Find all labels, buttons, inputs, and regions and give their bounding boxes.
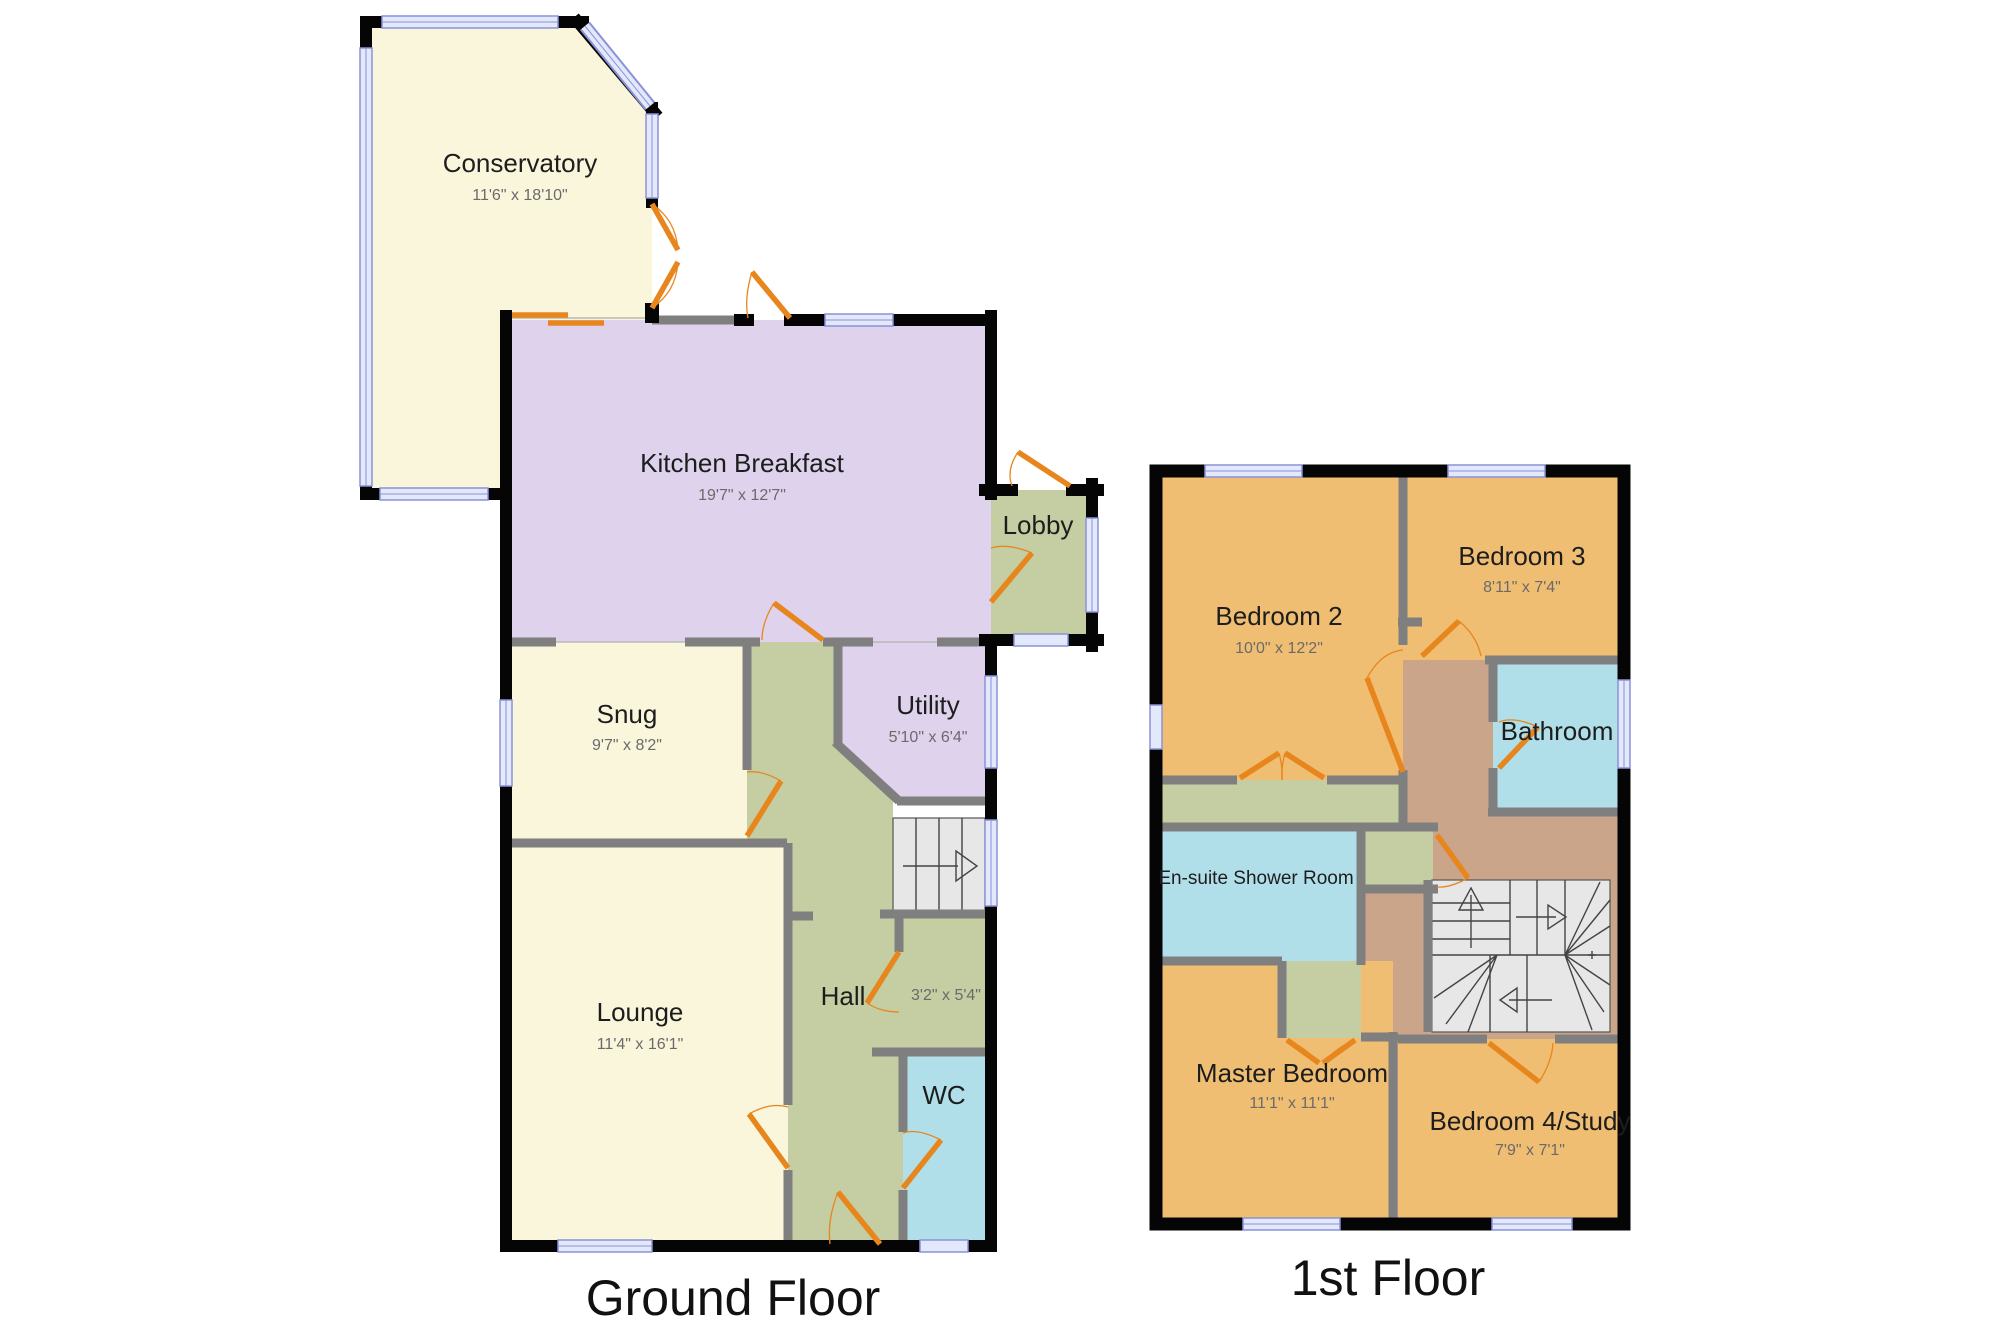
dims-bedroom-3: 8'11" x 7'4"	[1483, 579, 1561, 596]
dims-bedroom-4-study: 7'9" x 7'1"	[1495, 1142, 1565, 1159]
dims-master-bedroom: 11'1" x 11'1"	[1249, 1095, 1334, 1112]
dims-utility: 5'10" x 6'4"	[889, 729, 968, 746]
dims-snug: 9'7" x 8'2"	[592, 737, 662, 754]
door-conservatory-external	[652, 204, 678, 308]
first-floor-stairs	[1432, 880, 1610, 1032]
label-lounge: Lounge	[597, 997, 684, 1027]
label-wc: WC	[922, 1080, 965, 1110]
window-ensuite-left	[1150, 705, 1162, 749]
ground-floor-title: Ground Floor	[586, 1270, 881, 1326]
label-lobby: Lobby	[1003, 510, 1074, 540]
floorplan-page: Conservatory 11'6" x 18'10" Kitchen Brea…	[0, 0, 2000, 1333]
window-lobby-bottom	[1014, 634, 1068, 646]
label-kitchen-breakfast: Kitchen Breakfast	[640, 448, 845, 478]
label-bedroom-3: Bedroom 3	[1458, 541, 1585, 571]
door-kitchen-rear-external	[747, 272, 790, 318]
vestibule-master	[1282, 961, 1361, 1038]
dims-bedroom-2: 10'0" x 12'2"	[1235, 640, 1323, 657]
floorplan-drawing: Conservatory 11'6" x 18'10" Kitchen Brea…	[0, 0, 2000, 1333]
room-kitchen-breakfast	[506, 320, 991, 642]
label-utility: Utility	[896, 690, 960, 720]
label-bedroom-4-study: Bedroom 4/Study	[1430, 1106, 1631, 1136]
label-bathroom: Bathroom	[1501, 716, 1614, 746]
room-ensuite	[1162, 827, 1357, 961]
dims-lounge: 11'4" x 16'1"	[597, 1036, 684, 1053]
label-ensuite: En-suite Shower Room	[1158, 868, 1353, 889]
dims-kitchen-breakfast: 19'7" x 12'7"	[698, 487, 786, 504]
dims-hall: 3'2" x 5'4"	[911, 987, 981, 1004]
vestibule-ensuite	[1357, 827, 1433, 889]
corridor-bedroom-2	[1162, 780, 1403, 827]
first-floor-plan: Bedroom 2 10'0" x 12'2" Bedroom 3 8'11" …	[1150, 465, 1630, 1306]
dims-conservatory: 11'6" x 18'10"	[472, 187, 567, 204]
first-floor-title: 1st Floor	[1291, 1250, 1486, 1306]
window-wc-bottom	[920, 1240, 968, 1252]
label-hall: Hall	[821, 981, 866, 1011]
label-snug: Snug	[597, 699, 658, 729]
label-conservatory: Conservatory	[443, 148, 598, 178]
door-lobby-external	[1010, 452, 1070, 486]
label-master-bedroom: Master Bedroom	[1196, 1058, 1388, 1088]
label-bedroom-2: Bedroom 2	[1215, 601, 1342, 631]
ground-floor-stairs	[893, 818, 985, 912]
ground-floor-plan: Conservatory 11'6" x 18'10" Kitchen Brea…	[360, 16, 1098, 1326]
